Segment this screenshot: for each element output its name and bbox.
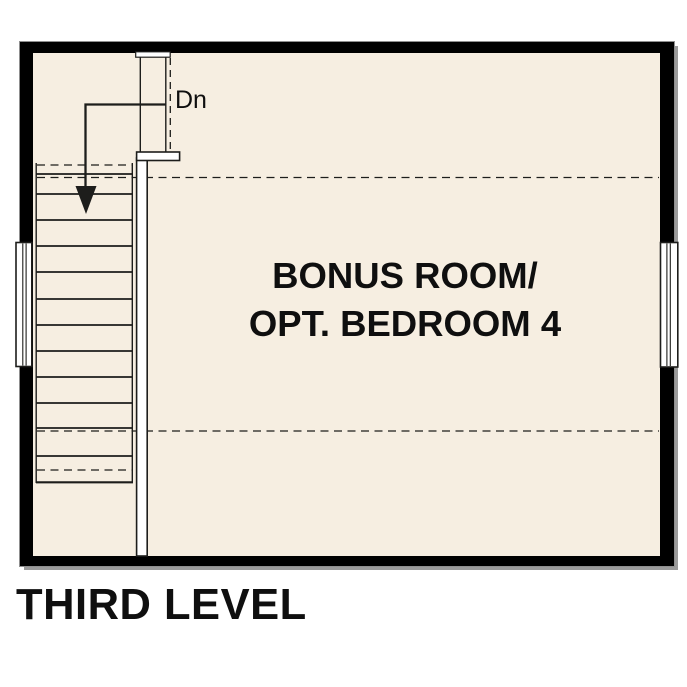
left-window xyxy=(16,243,32,367)
right-window xyxy=(661,243,678,368)
room-label: BONUS ROOM/ OPT. BEDROOM 4 xyxy=(150,252,660,347)
floor-plan-canvas: Dn BONUS ROOM/ OPT. BEDROOM 4 THIRD LEVE… xyxy=(0,0,687,687)
divider-wall-strip xyxy=(137,158,148,556)
railing-stub-top-cap xyxy=(136,52,171,57)
stair-landing-cap xyxy=(137,152,180,161)
room-label-line2: OPT. BEDROOM 4 xyxy=(150,300,660,348)
stairs-down-label: Dn xyxy=(175,88,207,113)
room-label-line1: BONUS ROOM/ xyxy=(150,252,660,300)
staircase xyxy=(36,163,133,483)
floor-title: THIRD LEVEL xyxy=(16,584,307,628)
stair-treads xyxy=(36,194,133,456)
